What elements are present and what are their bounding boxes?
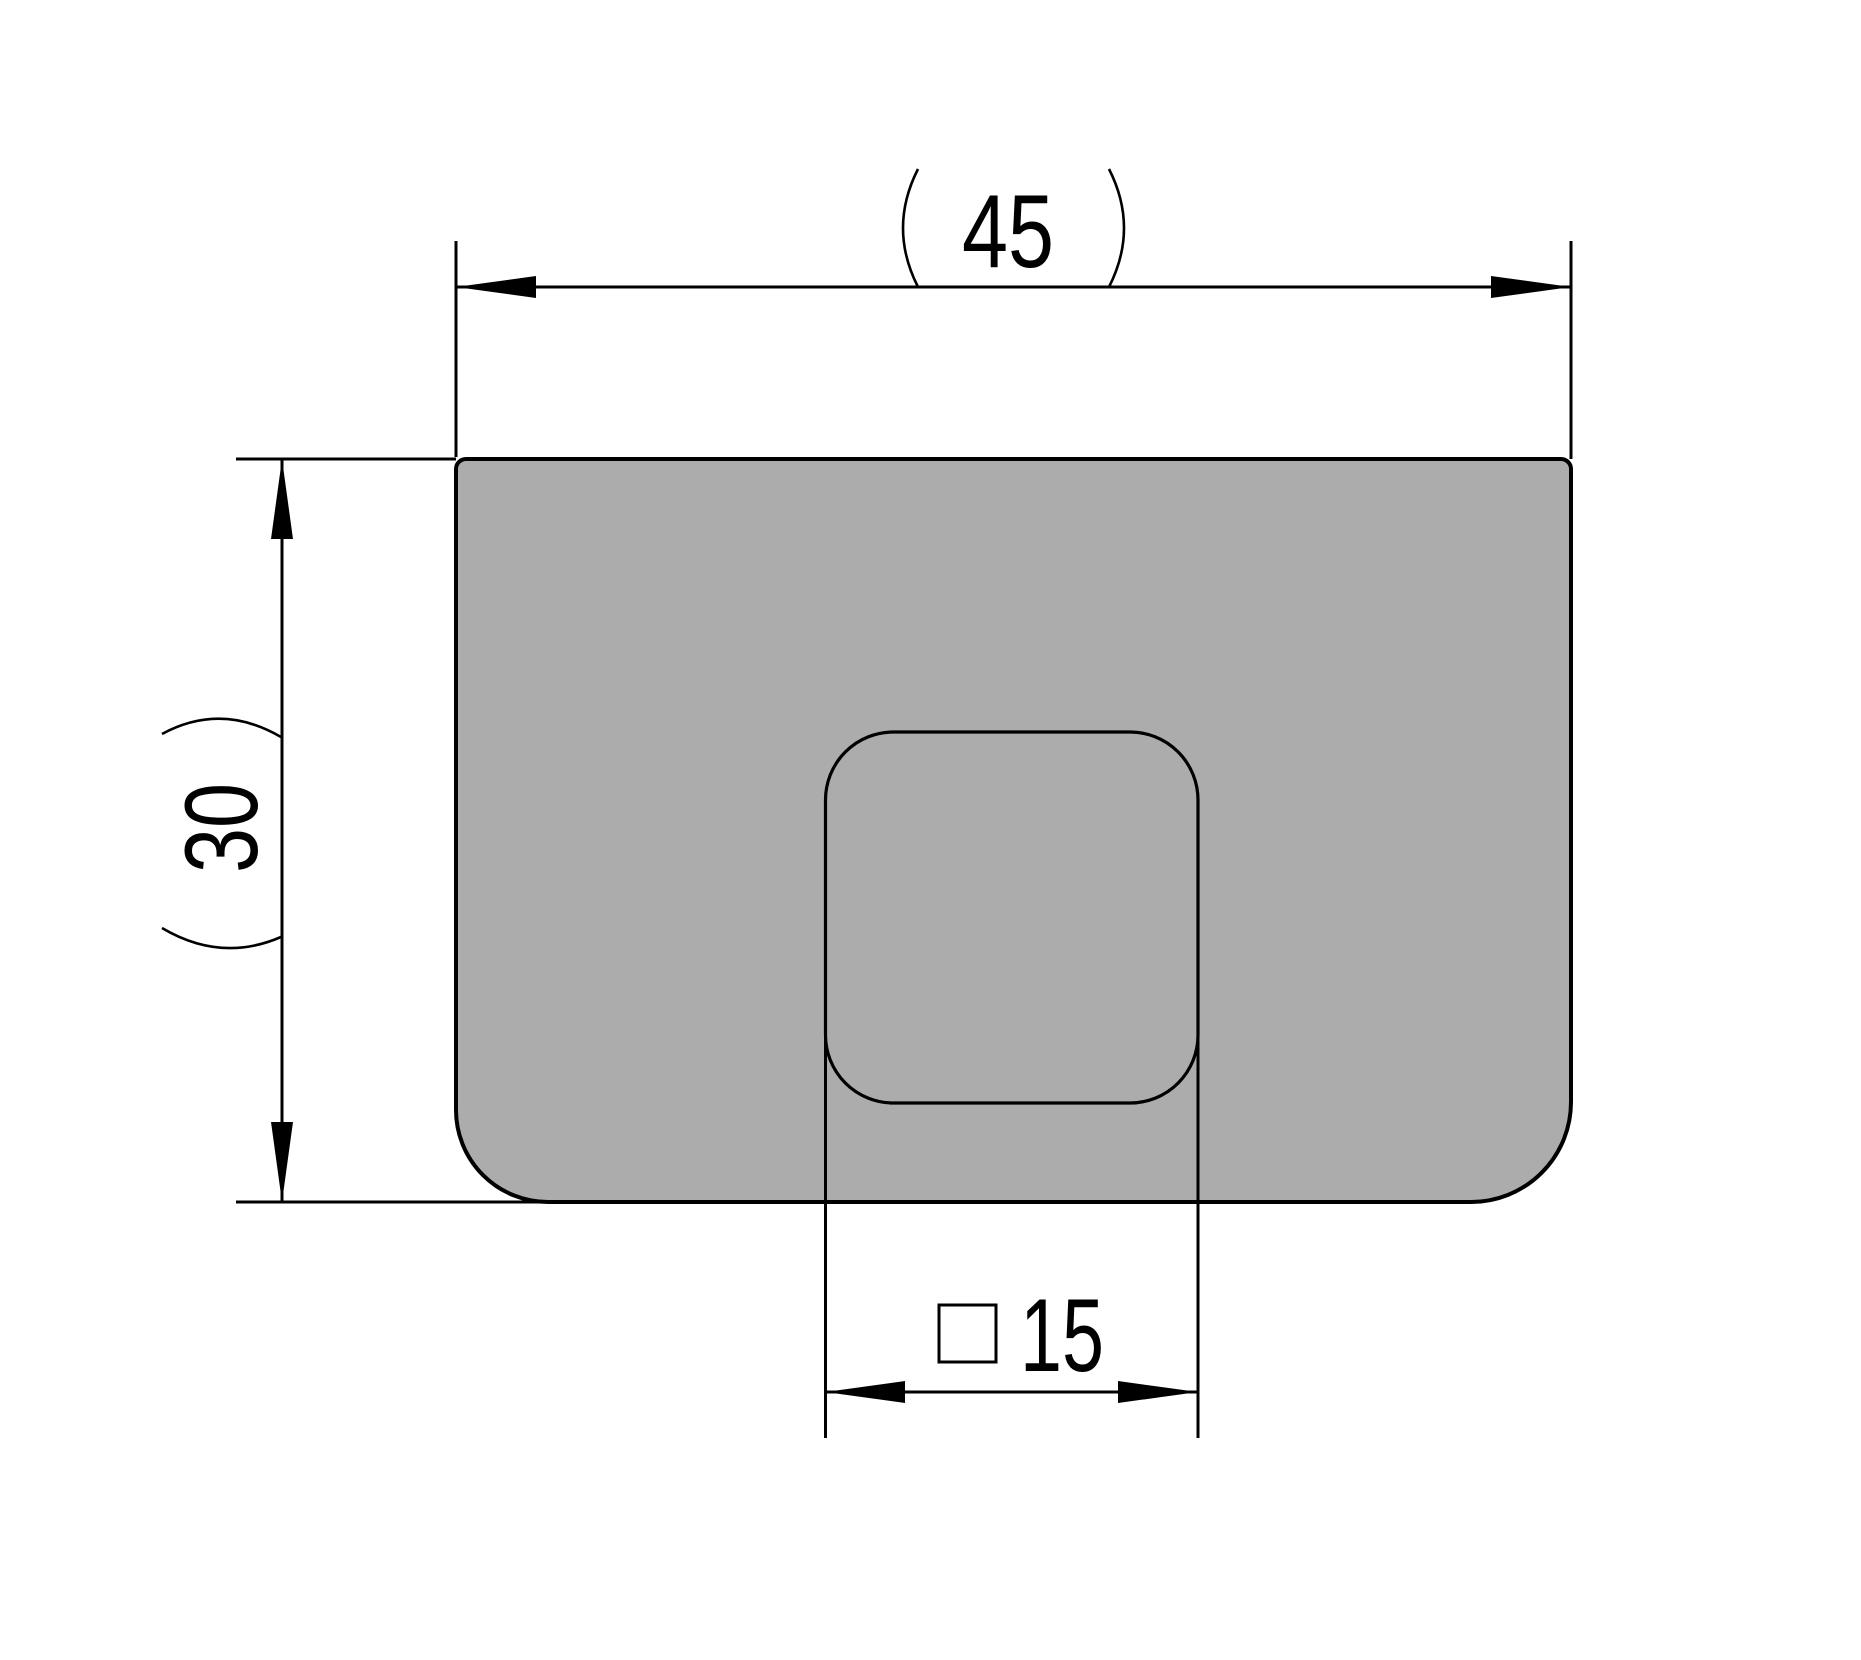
dimension-text-height: 30 [164,783,280,873]
arrowhead-pocket-right [1118,1381,1198,1403]
arrowhead-width-left [456,276,536,298]
dimension-text-width: 45 [962,174,1054,290]
arrowhead-pocket-left [826,1381,906,1403]
technical-drawing-canvas: 45 30 15 [0,0,1861,1660]
parenthesis-width-close [1109,169,1124,287]
parenthesis-width-open [903,169,918,287]
dimension-text-pocket: 15 [1020,1278,1104,1394]
square-symbol [939,1305,996,1362]
part-outline [456,459,1571,1202]
arrowhead-height-top [271,459,293,539]
arrowhead-width-right [1491,276,1571,298]
parenthesis-height-open [162,928,281,948]
parenthesis-height-close [162,719,281,737]
arrowhead-height-bottom [271,1122,293,1202]
technical-drawing-page: 45 30 15 [0,0,1861,1660]
